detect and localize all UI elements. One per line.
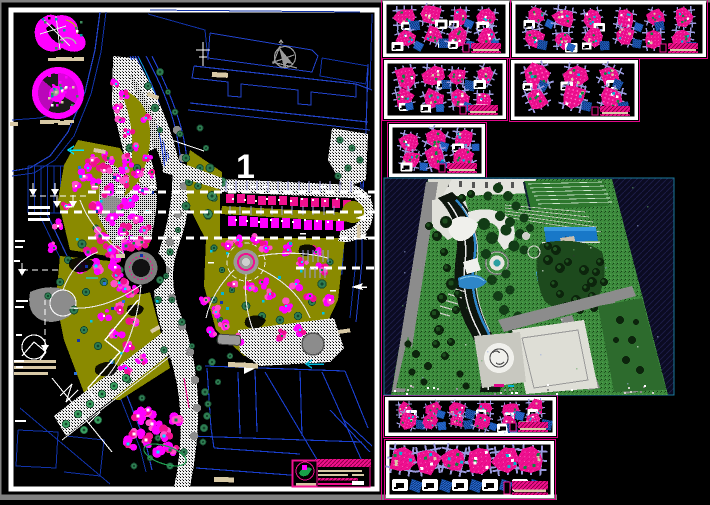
svg-text:1: 1	[236, 148, 255, 186]
